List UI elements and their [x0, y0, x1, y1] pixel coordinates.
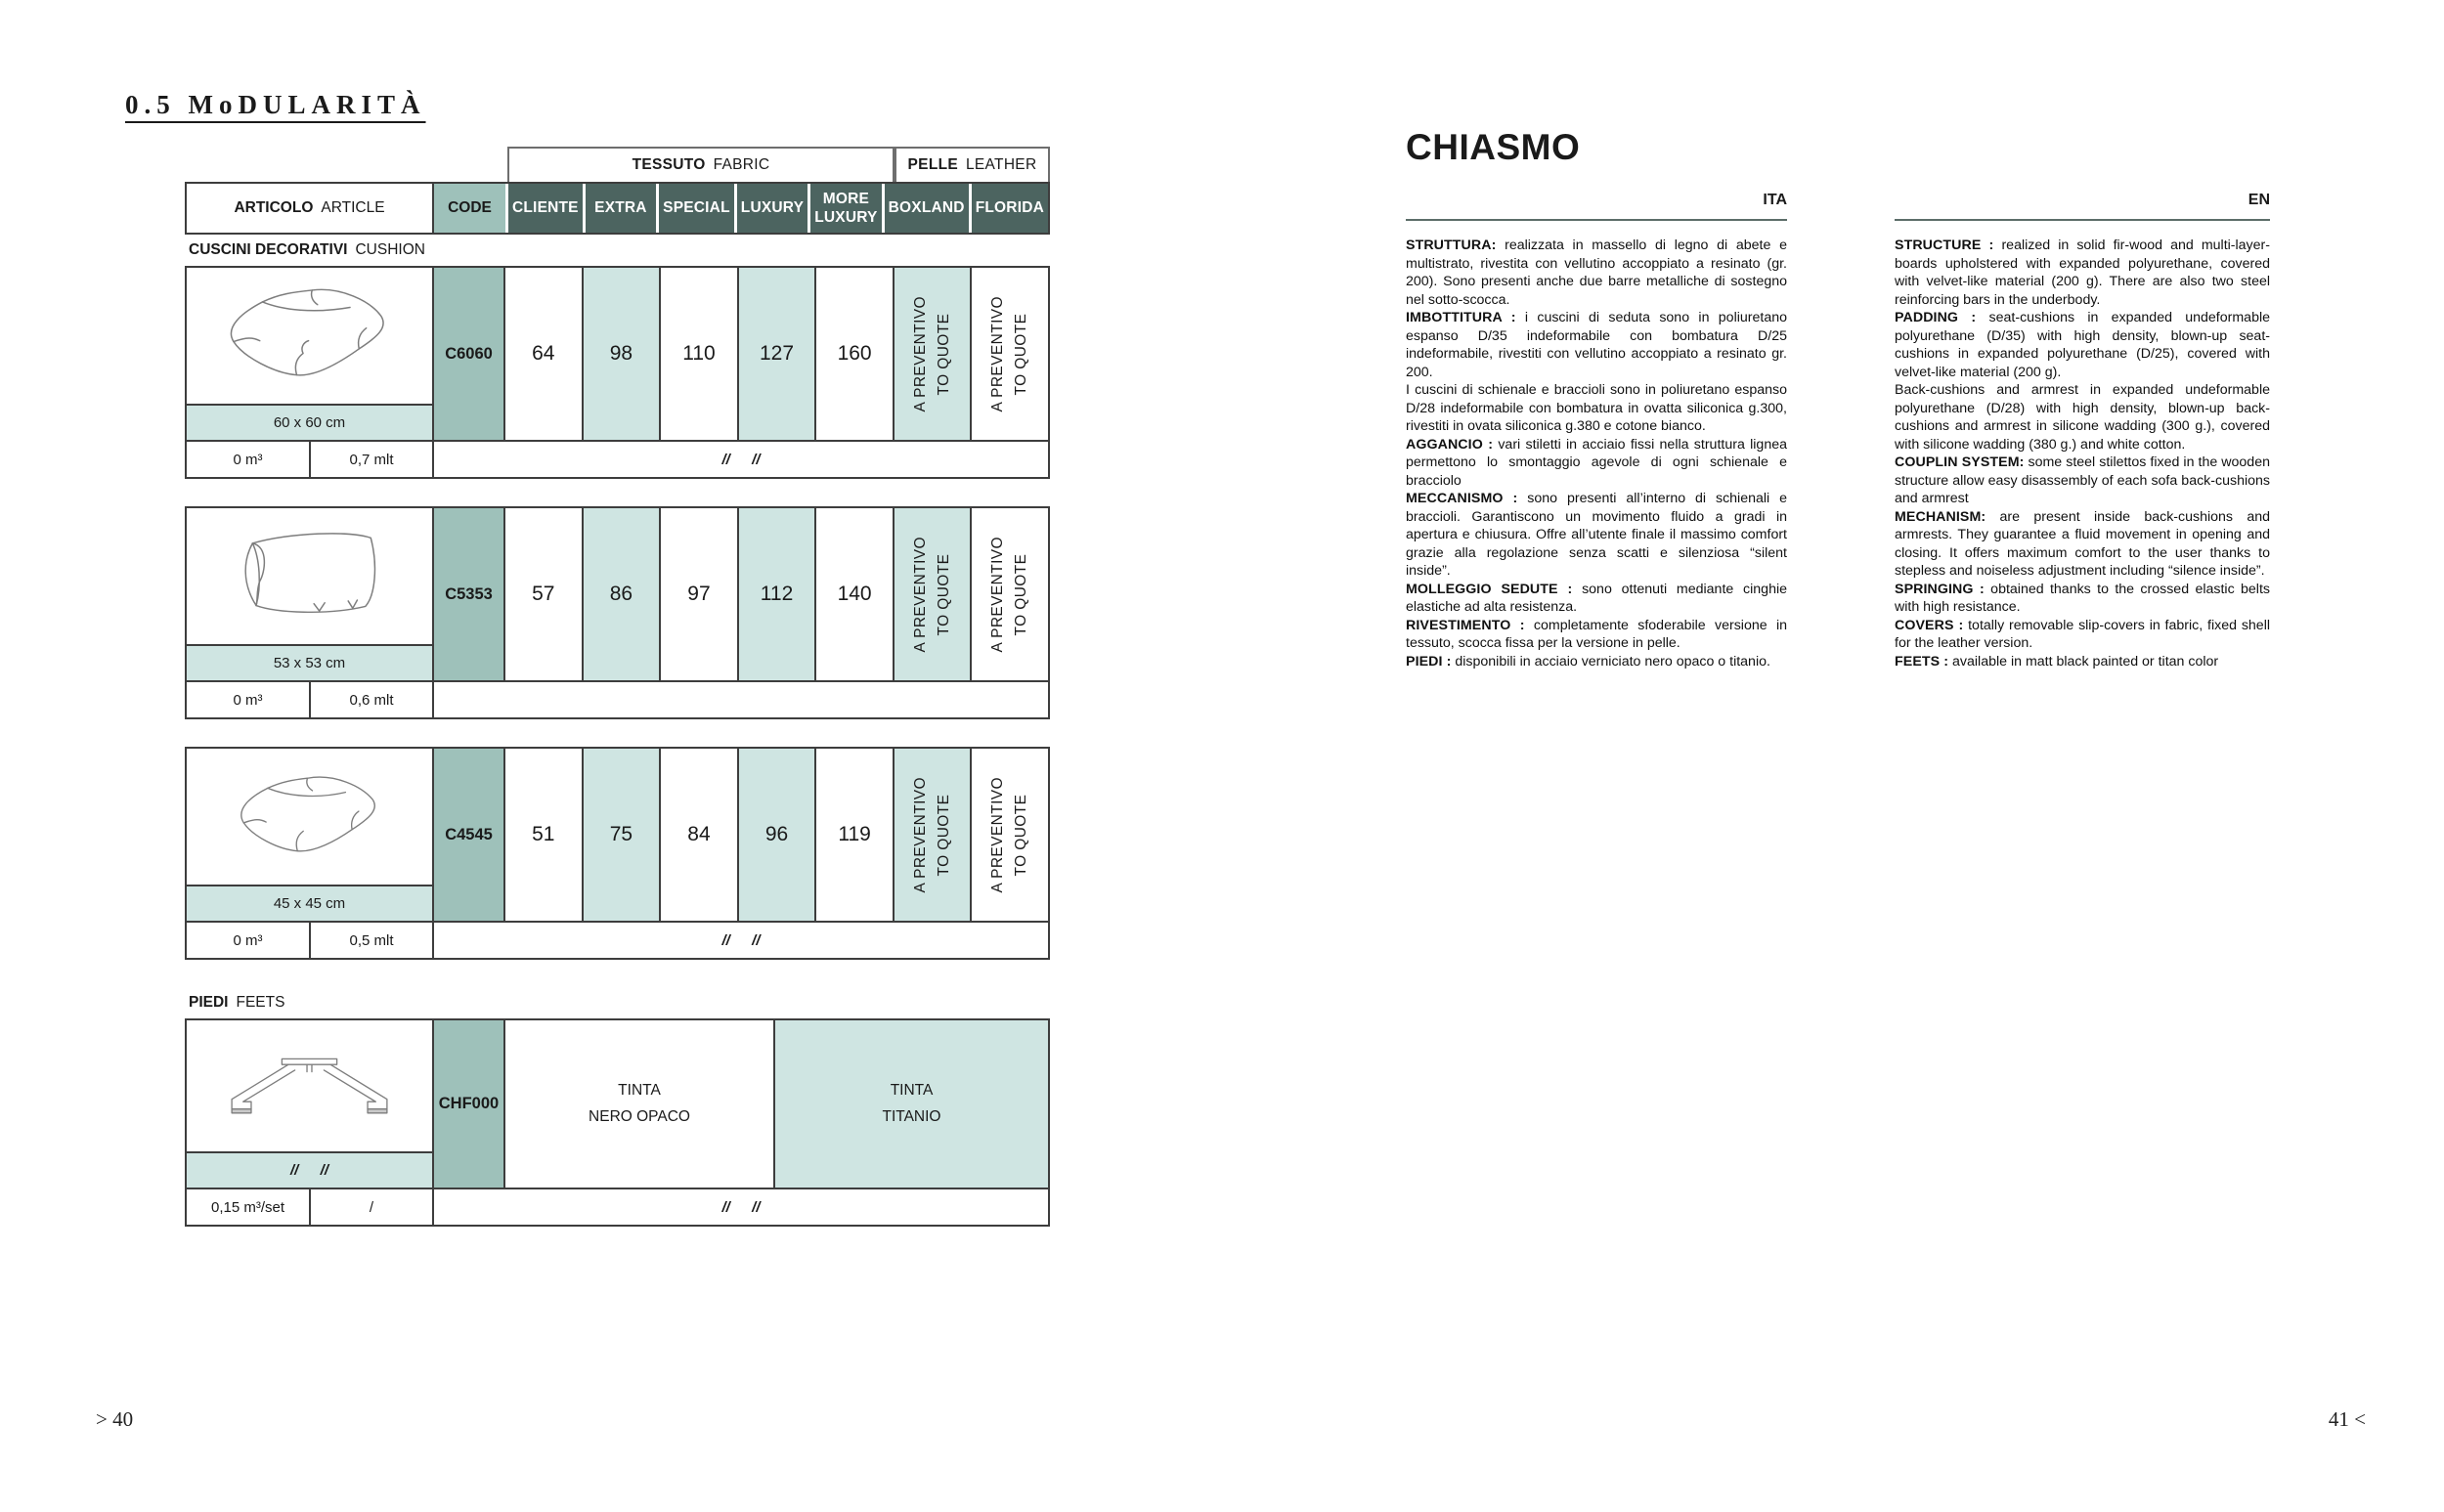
group-header-leather-light: LEATHER: [966, 156, 1036, 174]
paragraph-text: disponibili in acciaio verniciato nero o…: [1451, 654, 1770, 670]
column-rule: [1895, 219, 2270, 221]
section-label-cushions: CUSCINI DECORATIVI CUSHION: [185, 235, 1050, 266]
price-special: 110: [661, 268, 739, 440]
price-extra: 75: [584, 749, 662, 921]
code-cell: CHF000: [434, 1020, 505, 1188]
quote-label: A PREVENTIVO TO QUOTE: [909, 296, 956, 412]
en-paragraph: MECHANISM: are present inside back-cushi…: [1895, 508, 2270, 581]
ita-paragraph: MECCANISMO : sono presenti all’interno d…: [1406, 490, 1787, 581]
column-header-boxland: BOXLAND: [885, 184, 969, 233]
paragraph-label: PADDING :: [1895, 310, 1976, 325]
dimension-label: 60 x 60 cm: [187, 406, 432, 440]
paragraph-label: MECCANISMO :: [1406, 491, 1517, 506]
column-header-extra: EXTRA: [586, 184, 656, 233]
note-cell: // //: [434, 1189, 1048, 1225]
price-special: 97: [661, 508, 739, 680]
paragraph-text: Back-cushions and armrest in expanded un…: [1895, 382, 2270, 453]
price-special: 84: [661, 749, 739, 921]
ita-paragraph: STRUTTURA: realizzata in massello di leg…: [1406, 237, 1787, 309]
price-extra: 86: [584, 508, 662, 680]
language-label-en: EN: [1895, 192, 2270, 219]
price-more-luxury: 140: [816, 508, 895, 680]
price-luxury: 96: [739, 749, 817, 921]
paragraph-label: STRUCTURE :: [1895, 238, 1993, 253]
linear-meter-cell: /: [311, 1189, 434, 1225]
foot-drawing: [187, 1020, 432, 1153]
table-row: 45 x 45 cm C4545 51 75 84 96 119 A PREVE…: [185, 747, 1050, 960]
price-luxury: 127: [739, 268, 817, 440]
quote-label: A PREVENTIVO TO QUOTE: [986, 777, 1033, 893]
price-more-luxury: 119: [816, 749, 895, 921]
column-header-article-bold: ARTICOLO: [234, 199, 313, 217]
quote-cell-boxland: A PREVENTIVO TO QUOTE: [895, 508, 973, 680]
paragraph-text: I cuscini di schienale e braccioli sono …: [1406, 382, 1787, 434]
quote-label: A PREVENTIVO TO QUOTE: [986, 537, 1033, 653]
linear-meter-cell: 0,7 mlt: [311, 442, 434, 477]
column-header-right-group: CODE CLIENTE EXTRA SPECIAL LUXURY MORE L…: [434, 182, 1050, 235]
column-header-florida: FLORIDA: [972, 184, 1048, 233]
table-row: 60 x 60 cm C6060 64 98 110 127 160 A PRE…: [185, 266, 1050, 479]
price-extra: 98: [584, 268, 662, 440]
column-header-luxury: LUXURY: [737, 184, 807, 233]
price-more-luxury: 160: [816, 268, 895, 440]
group-header-spacer: [185, 147, 507, 182]
section-label-feet: PIEDI FEETS: [185, 987, 1050, 1018]
price-cliente: 51: [505, 749, 584, 921]
table-row-feet: // // CHF000 TINTA NERO OPACO TINTA TITA…: [185, 1018, 1050, 1227]
page-title: 0.5 MoDULARITÀ: [125, 90, 426, 120]
page-number-right: 41 <: [2278, 1407, 2366, 1432]
column-header-more-luxury: MORE LUXURY: [810, 184, 881, 233]
product-title: CHIASMO: [1406, 127, 1580, 168]
paragraph-label: MOLLEGGIO SEDUTE :: [1406, 582, 1572, 597]
feet-band-note: // //: [187, 1153, 432, 1188]
en-paragraph: FEETS : available in matt black painted …: [1895, 653, 2270, 671]
code-cell: C4545: [434, 749, 505, 921]
quote-cell-florida: A PREVENTIVO TO QUOTE: [972, 508, 1048, 680]
quote-cell-florida: A PREVENTIVO TO QUOTE: [972, 268, 1048, 440]
quote-cell-boxland: A PREVENTIVO TO QUOTE: [895, 268, 973, 440]
table-row: 53 x 53 cm C5353 57 86 97 112 140 A PREV…: [185, 506, 1050, 719]
volume-cell: 0 m³: [187, 923, 311, 958]
en-paragraph: Back-cushions and armrest in expanded un…: [1895, 381, 2270, 454]
volume-cell: 0 m³: [187, 682, 311, 717]
paragraph-label: IMBOTTITURA :: [1406, 310, 1516, 325]
group-header-fabric-light: FABRIC: [714, 156, 770, 174]
price-cliente: 57: [505, 508, 584, 680]
en-paragraph: PADDING : seat-cushions in expanded unde…: [1895, 309, 2270, 381]
volume-cell: 0 m³: [187, 442, 311, 477]
volume-cell: 0,15 m³/set: [187, 1189, 311, 1225]
en-paragraph: COUPLIN SYSTEM: some steel stilettos fix…: [1895, 454, 2270, 508]
quote-label: A PREVENTIVO TO QUOTE: [909, 777, 956, 893]
paragraph-label: AGGANCIO :: [1406, 437, 1493, 453]
finish-matt-black: TINTA NERO OPACO: [505, 1020, 775, 1188]
note-cell: [434, 682, 1048, 717]
quote-cell-florida: A PREVENTIVO TO QUOTE: [972, 749, 1048, 921]
column-header-special: SPECIAL: [659, 184, 734, 233]
quote-label: A PREVENTIVO TO QUOTE: [909, 537, 956, 653]
en-paragraph: COVERS : totally removable slip-covers i…: [1895, 617, 2270, 653]
section-label-feet-light: FEETS: [236, 994, 284, 1012]
en-paragraph: SPRINGING : obtained thanks to the cross…: [1895, 581, 2270, 617]
column-header-code: CODE: [434, 184, 505, 233]
price-cliente: 64: [505, 268, 584, 440]
section-label-cushions-light: CUSHION: [355, 241, 424, 259]
paragraph-label: COVERS :: [1895, 618, 1963, 633]
cushion-drawing: [187, 749, 432, 886]
note-cell: // //: [434, 923, 1048, 958]
note-cell: // //: [434, 442, 1048, 477]
paragraph-label: COUPLIN SYSTEM:: [1895, 454, 2024, 470]
column-header-cliente: CLIENTE: [508, 184, 583, 233]
paragraph-label: MECHANISM:: [1895, 509, 1986, 525]
group-header-leather-bold: PELLE: [908, 156, 958, 174]
language-label-ita: ITA: [1406, 192, 1787, 219]
dimension-label: 45 x 45 cm: [187, 886, 432, 921]
finish-titanium: TINTA TITANIO: [775, 1020, 1048, 1188]
column-rule: [1406, 219, 1787, 221]
en-paragraph: STRUCTURE : realized in solid fir-wood a…: [1895, 237, 2270, 309]
code-cell: C5353: [434, 508, 505, 680]
ita-paragraph: I cuscini di schienale e braccioli sono …: [1406, 381, 1787, 436]
ita-paragraph: AGGANCIO : vari stiletti in acciaio fiss…: [1406, 436, 1787, 491]
section-label-cushions-bold: CUSCINI DECORATIVI: [189, 241, 347, 259]
paragraph-text: available in matt black painted or titan…: [1948, 654, 2218, 670]
code-cell: C6060: [434, 268, 505, 440]
cushion-drawing: [187, 508, 432, 646]
italian-column: ITA STRUTTURA: realizzata in massello di…: [1406, 192, 1787, 670]
section-label-feet-bold: PIEDI: [189, 994, 228, 1012]
quote-label: A PREVENTIVO TO QUOTE: [986, 296, 1033, 412]
page-number-left: > 40: [96, 1407, 133, 1432]
table-column-header-row: ARTICOLO ARTICLE CODE CLIENTE EXTRA SPEC…: [185, 182, 1050, 235]
group-header-fabric-bold: TESSUTO: [633, 156, 706, 174]
ita-paragraph: RIVESTIMENTO : completamente sfoderabile…: [1406, 617, 1787, 653]
column-header-article-light: ARTICLE: [321, 199, 384, 217]
table-group-header-row: TESSUTO FABRIC PELLE LEATHER: [185, 147, 1050, 182]
ita-paragraph: IMBOTTITURA : i cuscini di seduta sono i…: [1406, 309, 1787, 381]
paragraph-label: RIVESTIMENTO :: [1406, 618, 1525, 633]
group-header-leather: PELLE LEATHER: [895, 147, 1050, 182]
paragraph-label: FEETS :: [1895, 654, 1948, 670]
english-column: EN STRUCTURE : realized in solid fir-woo…: [1895, 192, 2270, 670]
linear-meter-cell: 0,5 mlt: [311, 923, 434, 958]
quote-cell-boxland: A PREVENTIVO TO QUOTE: [895, 749, 973, 921]
paragraph-label: PIEDI :: [1406, 654, 1451, 670]
paragraph-label: SPRINGING :: [1895, 582, 1985, 597]
price-table: TESSUTO FABRIC PELLE LEATHER ARTICOLO AR…: [185, 147, 1050, 1254]
ita-paragraph: MOLLEGGIO SEDUTE : sono ottenuti mediant…: [1406, 581, 1787, 617]
group-header-fabric: TESSUTO FABRIC: [507, 147, 895, 182]
column-header-article: ARTICOLO ARTICLE: [185, 182, 434, 235]
dimension-label: 53 x 53 cm: [187, 646, 432, 680]
price-luxury: 112: [739, 508, 817, 680]
cushion-drawing: [187, 268, 432, 406]
linear-meter-cell: 0,6 mlt: [311, 682, 434, 717]
ita-paragraph: PIEDI : disponibili in acciaio verniciat…: [1406, 653, 1787, 671]
paragraph-label: STRUTTURA:: [1406, 238, 1496, 253]
